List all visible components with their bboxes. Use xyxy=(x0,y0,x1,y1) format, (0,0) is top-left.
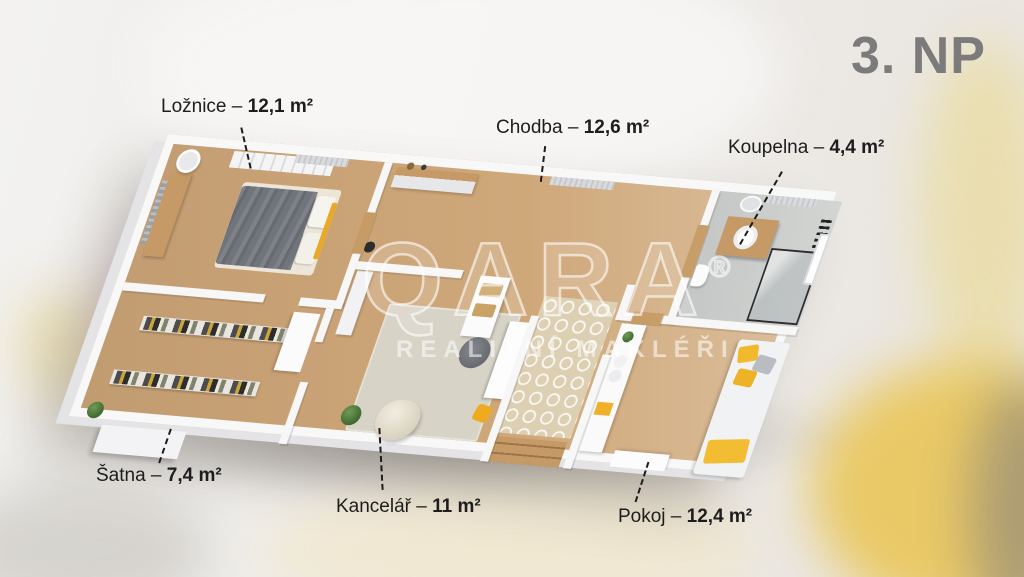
wicker-basket xyxy=(471,303,497,318)
room-area: 7,4 m² xyxy=(167,465,222,486)
room-label-loznice: Ložnice – 12,1 m² xyxy=(161,96,313,118)
bedroom-sideboard xyxy=(142,172,193,258)
clothes-rack xyxy=(109,369,260,396)
vase-decor xyxy=(406,162,416,170)
background-yellow-band xyxy=(920,40,1024,380)
room-label-chodba: Chodba – 12,6 m² xyxy=(496,117,649,139)
room-area: 12,1 m² xyxy=(248,96,313,117)
room-label-kancelar: Kancelář – 11 m² xyxy=(336,496,481,518)
room-area: 11 m² xyxy=(432,496,481,517)
pokoj-door-lintel xyxy=(630,311,664,325)
room-name: Chodba – xyxy=(496,117,578,138)
room-label-satna: Šatna – 7,4 m² xyxy=(96,465,222,487)
hall-console-table xyxy=(391,167,479,194)
room-name: Koupelna – xyxy=(728,137,824,158)
room-area: 12,6 m² xyxy=(584,117,649,138)
wall-bedroom-closet-left xyxy=(122,282,266,302)
room-name: Ložnice – xyxy=(161,96,242,117)
room-name: Šatna – xyxy=(96,465,162,486)
potted-plant xyxy=(85,401,107,419)
room-label-koupelna: Koupelna – 4,4 m² xyxy=(728,137,884,159)
room-area: 4,4 m² xyxy=(829,137,884,158)
vase-decor xyxy=(420,164,427,170)
floorplan-visualization: QARA® REALITNÍ MAKLÉŘI Ložnice – 12,1 m²… xyxy=(0,0,1024,577)
window-top-hall-radiator xyxy=(549,177,615,191)
floor-plan-3d xyxy=(69,134,837,474)
room-area: 12,4 m² xyxy=(687,506,752,527)
clothes-rack xyxy=(139,316,290,343)
wall-bedroom-hall-upper xyxy=(367,162,393,213)
bedroom-round-mirror xyxy=(173,148,204,174)
wall-closet-office-lower xyxy=(279,382,309,445)
room-name: Kancelář – xyxy=(336,496,427,517)
room-label-pokoj: Pokoj – 12,4 m² xyxy=(618,506,752,528)
yellow-pillow xyxy=(732,368,758,388)
room-name: Pokoj – xyxy=(618,506,681,527)
yellow-throw xyxy=(703,439,751,464)
wicker-basket xyxy=(478,283,504,298)
round-sink xyxy=(730,225,761,251)
hanging-clothes xyxy=(143,317,287,342)
floor-title: 3. NP xyxy=(851,26,986,86)
bedroom-bed xyxy=(214,182,343,276)
hanging-clothes xyxy=(113,371,257,396)
